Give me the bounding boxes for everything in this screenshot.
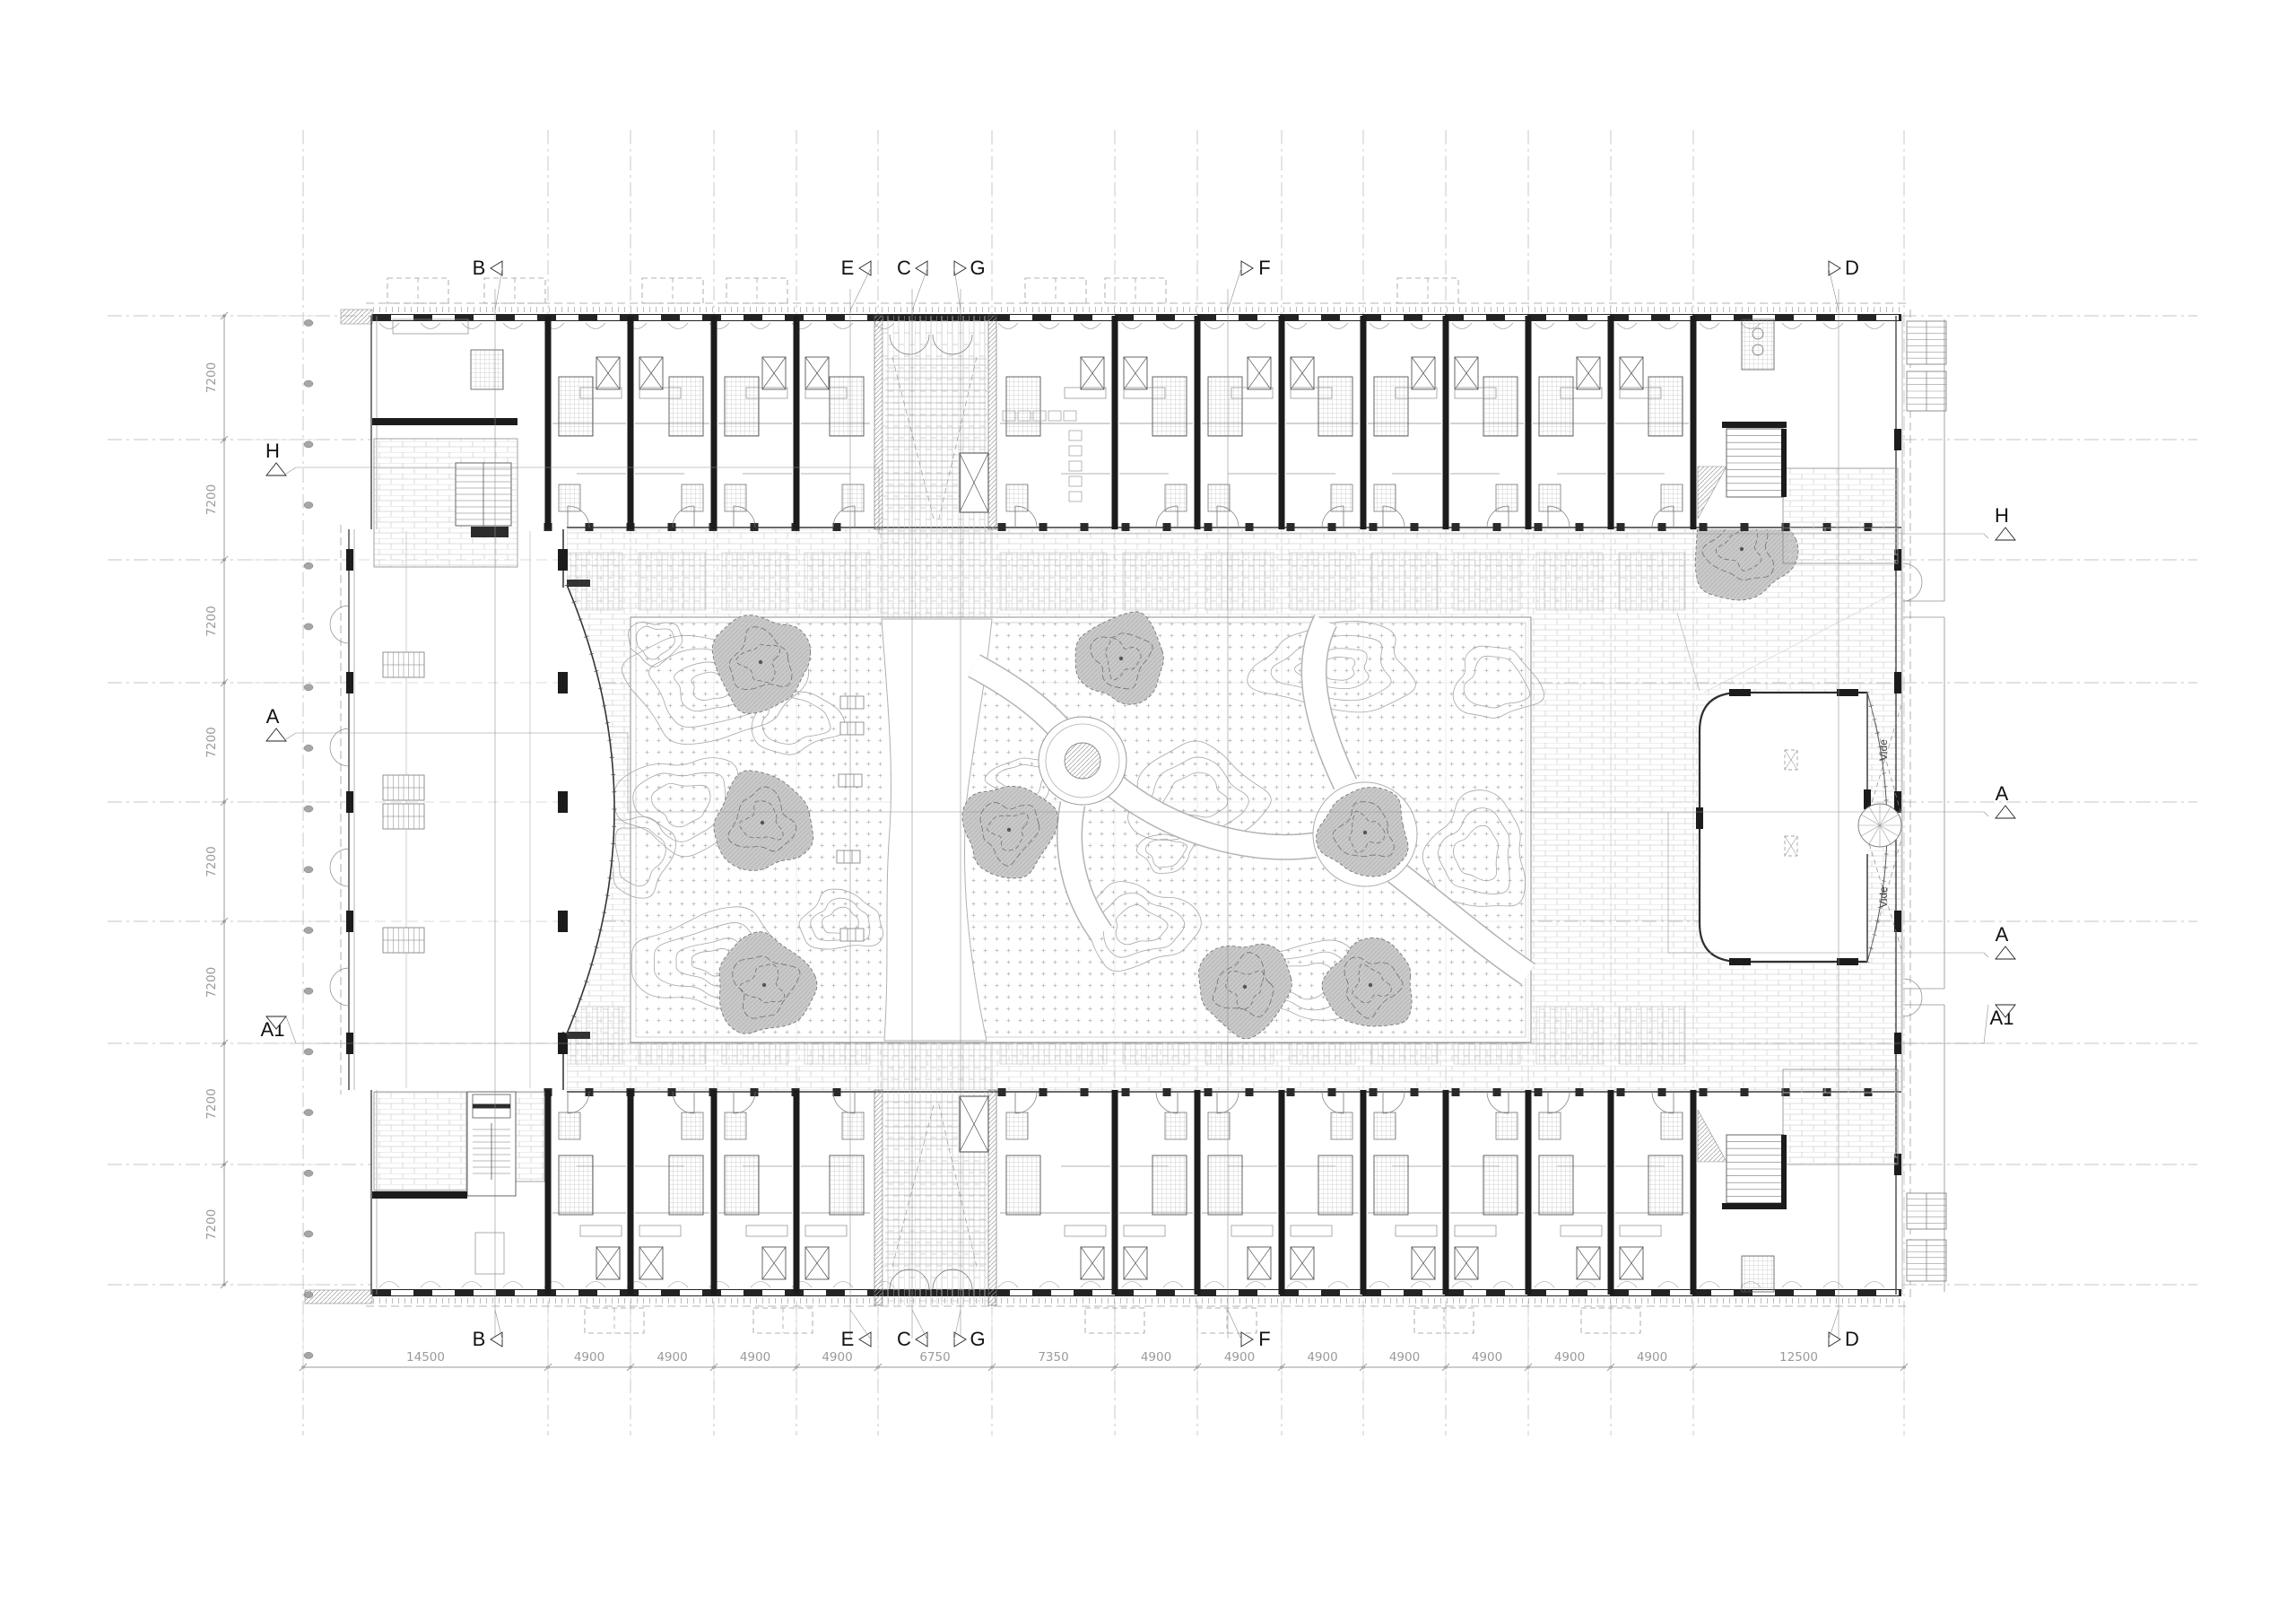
column-base bbox=[751, 523, 759, 531]
facade-window bbox=[1299, 1290, 1321, 1295]
wc bbox=[1374, 484, 1396, 511]
label-leader bbox=[1829, 268, 1839, 310]
column-base bbox=[1617, 1088, 1625, 1096]
grid-label-H-right: H bbox=[1995, 504, 2009, 527]
paving-band bbox=[1536, 1007, 1603, 1064]
column-base bbox=[1370, 523, 1378, 531]
facade-window bbox=[1505, 1290, 1527, 1295]
se-kitchen bbox=[1742, 1256, 1774, 1292]
hall-pier bbox=[558, 791, 568, 813]
facade-pier bbox=[1894, 672, 1901, 693]
bench bbox=[840, 722, 864, 735]
facade-window bbox=[1010, 1290, 1032, 1295]
entry-passage bbox=[883, 1092, 988, 1305]
se-terrace bbox=[1783, 1069, 1898, 1164]
facade-window bbox=[1711, 1290, 1734, 1295]
tree-trunk bbox=[1363, 831, 1367, 834]
survey-dot bbox=[304, 806, 313, 812]
column-base bbox=[1576, 1088, 1584, 1096]
party-wall bbox=[1608, 316, 1614, 529]
grid-label-triangle bbox=[859, 1332, 871, 1347]
wc bbox=[1661, 1112, 1683, 1139]
party-wall bbox=[1112, 316, 1118, 529]
door-swing bbox=[330, 968, 349, 987]
label-leader bbox=[495, 268, 502, 310]
wc bbox=[1165, 484, 1187, 511]
facade-window bbox=[762, 315, 785, 320]
facade-window bbox=[1257, 315, 1280, 320]
door-swing bbox=[330, 728, 349, 747]
survey-dot bbox=[304, 1352, 313, 1358]
grid-label-E-top: E bbox=[841, 257, 855, 279]
column-base bbox=[1658, 1088, 1666, 1096]
grid-label-H-left: H bbox=[265, 440, 280, 462]
entry-porch bbox=[305, 1290, 372, 1304]
wc bbox=[1496, 1112, 1518, 1139]
paving-band bbox=[1536, 553, 1603, 610]
facade-window bbox=[1794, 1290, 1816, 1295]
facade-window bbox=[1051, 1290, 1074, 1295]
hall-pier bbox=[1837, 689, 1858, 696]
facade-mullion-band bbox=[372, 307, 1901, 312]
facade-window bbox=[804, 315, 826, 320]
facade-window bbox=[474, 315, 496, 320]
party-wall bbox=[628, 316, 634, 529]
facade-window bbox=[515, 315, 537, 320]
bathroom bbox=[1374, 1155, 1408, 1215]
column-base bbox=[1163, 523, 1171, 531]
wc bbox=[1208, 484, 1230, 511]
column-base bbox=[1081, 1088, 1089, 1096]
dim-value-bottom: 7350 bbox=[1038, 1350, 1068, 1365]
facade-window bbox=[474, 1290, 496, 1295]
label-leader bbox=[954, 268, 961, 310]
facade-window bbox=[597, 1290, 620, 1295]
sw-terrace bbox=[374, 1092, 466, 1190]
column-base bbox=[1039, 1088, 1048, 1096]
dim-value-left: 7200 bbox=[204, 846, 219, 876]
party-wall bbox=[711, 316, 717, 529]
bench bbox=[837, 850, 860, 863]
sw-terrace bbox=[516, 1092, 544, 1182]
tree-trunk bbox=[1243, 985, 1247, 989]
party-wall bbox=[1279, 316, 1285, 529]
survey-dot bbox=[304, 380, 313, 387]
bathroom bbox=[1648, 1155, 1683, 1215]
facade-window bbox=[1422, 315, 1445, 320]
column-base bbox=[1535, 523, 1543, 531]
paving-band bbox=[639, 553, 706, 610]
column-base bbox=[668, 1088, 676, 1096]
party-wall bbox=[1526, 1090, 1532, 1295]
grid-label-A-right: A bbox=[1996, 923, 2009, 946]
dim-value-bottom: 4900 bbox=[1141, 1350, 1171, 1365]
door-swing bbox=[330, 849, 349, 868]
facade-window bbox=[639, 1290, 661, 1295]
party-wall bbox=[1195, 316, 1201, 529]
grid-label-C-top: C bbox=[897, 257, 911, 279]
column-base bbox=[998, 1088, 1006, 1096]
facade-window bbox=[1629, 315, 1651, 320]
facade-window bbox=[597, 315, 620, 320]
column-base bbox=[833, 523, 841, 531]
wc bbox=[1331, 1112, 1352, 1139]
facade-window bbox=[1629, 1290, 1651, 1295]
walkway-band bbox=[882, 1041, 992, 1090]
door-swing bbox=[330, 624, 349, 643]
void-label: Vide bbox=[1877, 739, 1890, 761]
survey-dot bbox=[304, 867, 313, 873]
party-wall bbox=[1112, 1090, 1118, 1295]
grid-label-triangle bbox=[266, 463, 286, 475]
party-wall bbox=[711, 1090, 717, 1295]
label-leader bbox=[1228, 268, 1241, 310]
facade-pier bbox=[1894, 911, 1901, 932]
dim-value-bottom: 4900 bbox=[1554, 1350, 1585, 1365]
spiral-stair bbox=[1858, 804, 1901, 847]
survey-dot bbox=[304, 562, 313, 569]
survey-dot bbox=[304, 685, 313, 691]
bathroom bbox=[1152, 1155, 1187, 1215]
passage-wall bbox=[988, 1090, 996, 1305]
wc bbox=[1165, 1112, 1187, 1139]
wc bbox=[559, 484, 580, 511]
column-base bbox=[1081, 523, 1089, 531]
bathroom bbox=[1152, 377, 1187, 436]
facade-window bbox=[1051, 315, 1074, 320]
bathroom bbox=[1648, 377, 1683, 436]
void-label: Vide bbox=[1877, 886, 1890, 908]
grid-label-triangle bbox=[1241, 1332, 1253, 1347]
bathroom bbox=[1483, 377, 1518, 436]
label-leader bbox=[286, 1016, 296, 1043]
column-base bbox=[1122, 1088, 1130, 1096]
grid-label-triangle bbox=[491, 261, 502, 275]
facade-window bbox=[721, 1290, 744, 1295]
dim-value-bottom: 4900 bbox=[1307, 1350, 1337, 1365]
facade-window bbox=[1876, 1290, 1899, 1295]
paving-band bbox=[722, 553, 788, 610]
paving-band bbox=[1205, 553, 1274, 610]
survey-dot bbox=[304, 441, 313, 448]
label-leader bbox=[286, 733, 296, 739]
grid-label-triangle bbox=[954, 261, 966, 275]
grid-label-triangle bbox=[1996, 806, 2015, 818]
grid-label-E-bottom: E bbox=[841, 1328, 855, 1350]
bathroom bbox=[1318, 1155, 1352, 1215]
door-swing bbox=[330, 987, 349, 1006]
grid-label-D-top: D bbox=[1845, 257, 1859, 279]
tree-trunk bbox=[759, 660, 762, 664]
grid-label-triangle bbox=[491, 1332, 502, 1347]
bathroom bbox=[1318, 377, 1352, 436]
column-base bbox=[1658, 523, 1666, 531]
dim-value-left: 7200 bbox=[204, 1209, 219, 1240]
facade-window bbox=[1257, 1290, 1280, 1295]
nw-wall bbox=[372, 418, 517, 425]
hall-pier bbox=[558, 549, 568, 571]
paving-band bbox=[1371, 553, 1438, 610]
party-wall bbox=[794, 316, 800, 529]
column-base bbox=[1328, 523, 1336, 531]
grid-label-F-bottom: F bbox=[1258, 1328, 1270, 1350]
column-base bbox=[1493, 1088, 1501, 1096]
facade-window bbox=[556, 315, 578, 320]
party-wall bbox=[1691, 1090, 1697, 1295]
survey-dot bbox=[304, 927, 313, 933]
facade-window bbox=[515, 1290, 537, 1295]
grid-label-B-bottom: B bbox=[473, 1328, 486, 1350]
door-swing bbox=[1903, 582, 1922, 601]
bathroom bbox=[725, 1155, 759, 1215]
column-base bbox=[1039, 523, 1048, 531]
column-base bbox=[1205, 1088, 1213, 1096]
wc bbox=[1539, 1112, 1561, 1139]
paving-band bbox=[1000, 553, 1107, 610]
wc bbox=[725, 1112, 746, 1139]
column-base bbox=[1163, 1088, 1171, 1096]
column-base bbox=[1411, 523, 1419, 531]
paving-band bbox=[1619, 553, 1685, 610]
dim-value-bottom: 4900 bbox=[1637, 1350, 1667, 1365]
facade-pier bbox=[346, 791, 353, 813]
bathroom bbox=[1539, 377, 1573, 436]
bathroom bbox=[559, 1155, 593, 1215]
grid-label-C-bottom: C bbox=[897, 1328, 911, 1350]
paving-band bbox=[1454, 553, 1520, 610]
facade-window bbox=[556, 1290, 578, 1295]
facade-pier bbox=[1894, 429, 1901, 450]
tree-trunk bbox=[1740, 547, 1744, 551]
survey-dot bbox=[304, 988, 313, 994]
passage-wall bbox=[874, 316, 883, 529]
bathroom bbox=[1006, 377, 1040, 436]
facade-mullion-band bbox=[372, 1298, 1901, 1304]
label-leader bbox=[1984, 1005, 1988, 1043]
facade-window bbox=[1546, 1290, 1569, 1295]
label-leader bbox=[1984, 534, 1988, 538]
door-swing bbox=[1903, 979, 1922, 998]
label-leader bbox=[912, 1310, 927, 1339]
grid-label-A-left: A bbox=[266, 705, 280, 728]
facade-window bbox=[680, 1290, 702, 1295]
column-base bbox=[1411, 1088, 1419, 1096]
bathroom bbox=[669, 377, 703, 436]
hall-pier bbox=[1729, 689, 1751, 696]
column-base bbox=[1617, 523, 1625, 531]
facade-pier bbox=[346, 911, 353, 932]
survey-dot bbox=[304, 1049, 313, 1055]
column-base bbox=[668, 523, 676, 531]
facade-window bbox=[1092, 1290, 1115, 1295]
party-wall bbox=[1279, 1090, 1285, 1295]
column-base bbox=[1246, 523, 1254, 531]
paving-band bbox=[1290, 553, 1355, 610]
east-hall-wall bbox=[1700, 693, 1867, 962]
column-base bbox=[1741, 1088, 1749, 1096]
facade-window bbox=[1216, 315, 1239, 320]
facade-window bbox=[1546, 315, 1569, 320]
facade-window bbox=[1175, 1290, 1197, 1295]
door-swing bbox=[330, 747, 349, 766]
facade-window bbox=[721, 315, 744, 320]
wc bbox=[1331, 484, 1352, 511]
grid-label-G-top: G bbox=[970, 257, 985, 279]
bathroom bbox=[1483, 1155, 1518, 1215]
facade-window bbox=[1422, 1290, 1445, 1295]
dim-value-bottom: 4900 bbox=[1224, 1350, 1255, 1365]
dim-value-bottom: 4900 bbox=[740, 1350, 770, 1365]
bench bbox=[840, 696, 864, 709]
facade-window bbox=[391, 1290, 413, 1295]
entry-porch bbox=[341, 310, 372, 324]
facade-window bbox=[1299, 315, 1321, 320]
column-base bbox=[1493, 523, 1501, 531]
dim-value-bottom: 12500 bbox=[1779, 1350, 1818, 1365]
bathroom bbox=[830, 1155, 864, 1215]
facade-window bbox=[1876, 315, 1899, 320]
column-base bbox=[1576, 523, 1584, 531]
column-base bbox=[1452, 1088, 1460, 1096]
facade-window bbox=[1092, 315, 1115, 320]
facade-window bbox=[845, 315, 867, 320]
tree-trunk bbox=[1119, 657, 1123, 660]
door-swing bbox=[1903, 998, 1922, 1016]
facade-window bbox=[1340, 315, 1362, 320]
bench bbox=[840, 929, 864, 941]
survey-dot bbox=[304, 745, 313, 751]
survey-dot bbox=[304, 624, 313, 630]
grid-label-triangle bbox=[916, 1332, 927, 1347]
facade-window bbox=[1464, 1290, 1486, 1295]
wc bbox=[682, 484, 703, 511]
column-base bbox=[1287, 523, 1295, 531]
facade-window bbox=[1587, 315, 1610, 320]
column-base bbox=[1535, 1088, 1543, 1096]
grid-label-B-top: B bbox=[473, 257, 486, 279]
hall-pier bbox=[558, 672, 568, 693]
survey-dot bbox=[304, 1110, 313, 1116]
facade-window bbox=[639, 315, 661, 320]
facade-pier bbox=[346, 672, 353, 693]
dim-value-bottom: 14500 bbox=[406, 1350, 445, 1365]
column-base bbox=[1452, 523, 1460, 531]
door-swing bbox=[330, 868, 349, 886]
wc bbox=[1539, 484, 1561, 511]
grid-label-triangle bbox=[1996, 528, 2015, 540]
wc bbox=[1374, 1112, 1396, 1139]
column-base bbox=[1370, 1088, 1378, 1096]
bathroom bbox=[725, 377, 759, 436]
tree-trunk bbox=[761, 821, 764, 824]
facade-window bbox=[1587, 1290, 1610, 1295]
party-wall bbox=[545, 316, 552, 529]
wc bbox=[559, 1112, 580, 1139]
column-base bbox=[1700, 523, 1708, 531]
wc bbox=[1006, 484, 1028, 511]
entry-passage bbox=[883, 316, 988, 529]
column-base bbox=[1246, 1088, 1254, 1096]
facade-window bbox=[762, 1290, 785, 1295]
grid-label-G-bottom: G bbox=[970, 1328, 985, 1350]
tree-trunk bbox=[1369, 983, 1372, 987]
column-base bbox=[833, 1088, 841, 1096]
passage-wall bbox=[988, 316, 996, 529]
bathroom bbox=[669, 1155, 703, 1215]
dim-value-left: 7200 bbox=[204, 484, 219, 515]
wc bbox=[725, 484, 746, 511]
facade-window bbox=[1464, 315, 1486, 320]
door-swing bbox=[1903, 563, 1922, 582]
facade-window bbox=[1175, 315, 1197, 320]
facade-window bbox=[1505, 315, 1527, 320]
hall-pier bbox=[558, 911, 568, 932]
party-wall bbox=[1691, 316, 1697, 529]
facade-window bbox=[1134, 1290, 1156, 1295]
hall-pier bbox=[1837, 958, 1858, 965]
grid-label-F-top: F bbox=[1258, 257, 1270, 279]
facade-window bbox=[1381, 1290, 1404, 1295]
bathroom bbox=[1374, 377, 1408, 436]
ne-terrace bbox=[1783, 468, 1898, 563]
facade-window bbox=[1134, 315, 1156, 320]
grid-label-triangle bbox=[859, 261, 871, 275]
bathroom bbox=[1539, 1155, 1573, 1215]
facade-window bbox=[1340, 1290, 1362, 1295]
fountain bbox=[1039, 717, 1126, 805]
paving-band bbox=[1619, 1007, 1685, 1064]
party-wall bbox=[628, 1090, 634, 1295]
facade-window bbox=[1381, 315, 1404, 320]
nw-elevator bbox=[471, 527, 509, 537]
facade-window bbox=[1670, 315, 1692, 320]
facade-window bbox=[1794, 315, 1816, 320]
dim-value-left: 7200 bbox=[204, 362, 219, 393]
wc bbox=[1006, 1112, 1028, 1139]
facade-window bbox=[1216, 1290, 1239, 1295]
party-wall bbox=[1608, 1090, 1614, 1295]
column-base bbox=[998, 523, 1006, 531]
walkway-band bbox=[882, 529, 992, 619]
dim-value-left: 7200 bbox=[204, 967, 219, 998]
bathroom bbox=[1208, 377, 1242, 436]
door-swing bbox=[330, 606, 349, 624]
party-wall bbox=[1443, 1090, 1449, 1295]
nw-kitchen bbox=[471, 350, 503, 389]
dim-value-bottom: 4900 bbox=[574, 1350, 604, 1365]
survey-dot bbox=[304, 1170, 313, 1176]
dim-value-left: 7200 bbox=[204, 1088, 219, 1119]
facade-window bbox=[1010, 315, 1032, 320]
fountain-basin bbox=[1065, 743, 1100, 779]
party-wall bbox=[1195, 1090, 1201, 1295]
survey-dot bbox=[304, 319, 313, 326]
label-leader bbox=[1984, 812, 1988, 816]
facade-window bbox=[432, 1290, 455, 1295]
wc bbox=[1208, 1112, 1230, 1139]
column-base bbox=[1205, 523, 1213, 531]
dim-value-bottom: 6750 bbox=[919, 1350, 950, 1365]
facade-window bbox=[845, 1290, 867, 1295]
facade-window bbox=[680, 315, 702, 320]
survey-dot bbox=[304, 1231, 313, 1237]
dim-value-bottom: 4900 bbox=[1389, 1350, 1420, 1365]
wc bbox=[682, 1112, 703, 1139]
sw-wall bbox=[372, 1191, 467, 1199]
grid-label-triangle bbox=[1996, 946, 2015, 959]
facade-pier bbox=[346, 549, 353, 571]
dim-value-bottom: 4900 bbox=[822, 1350, 852, 1365]
